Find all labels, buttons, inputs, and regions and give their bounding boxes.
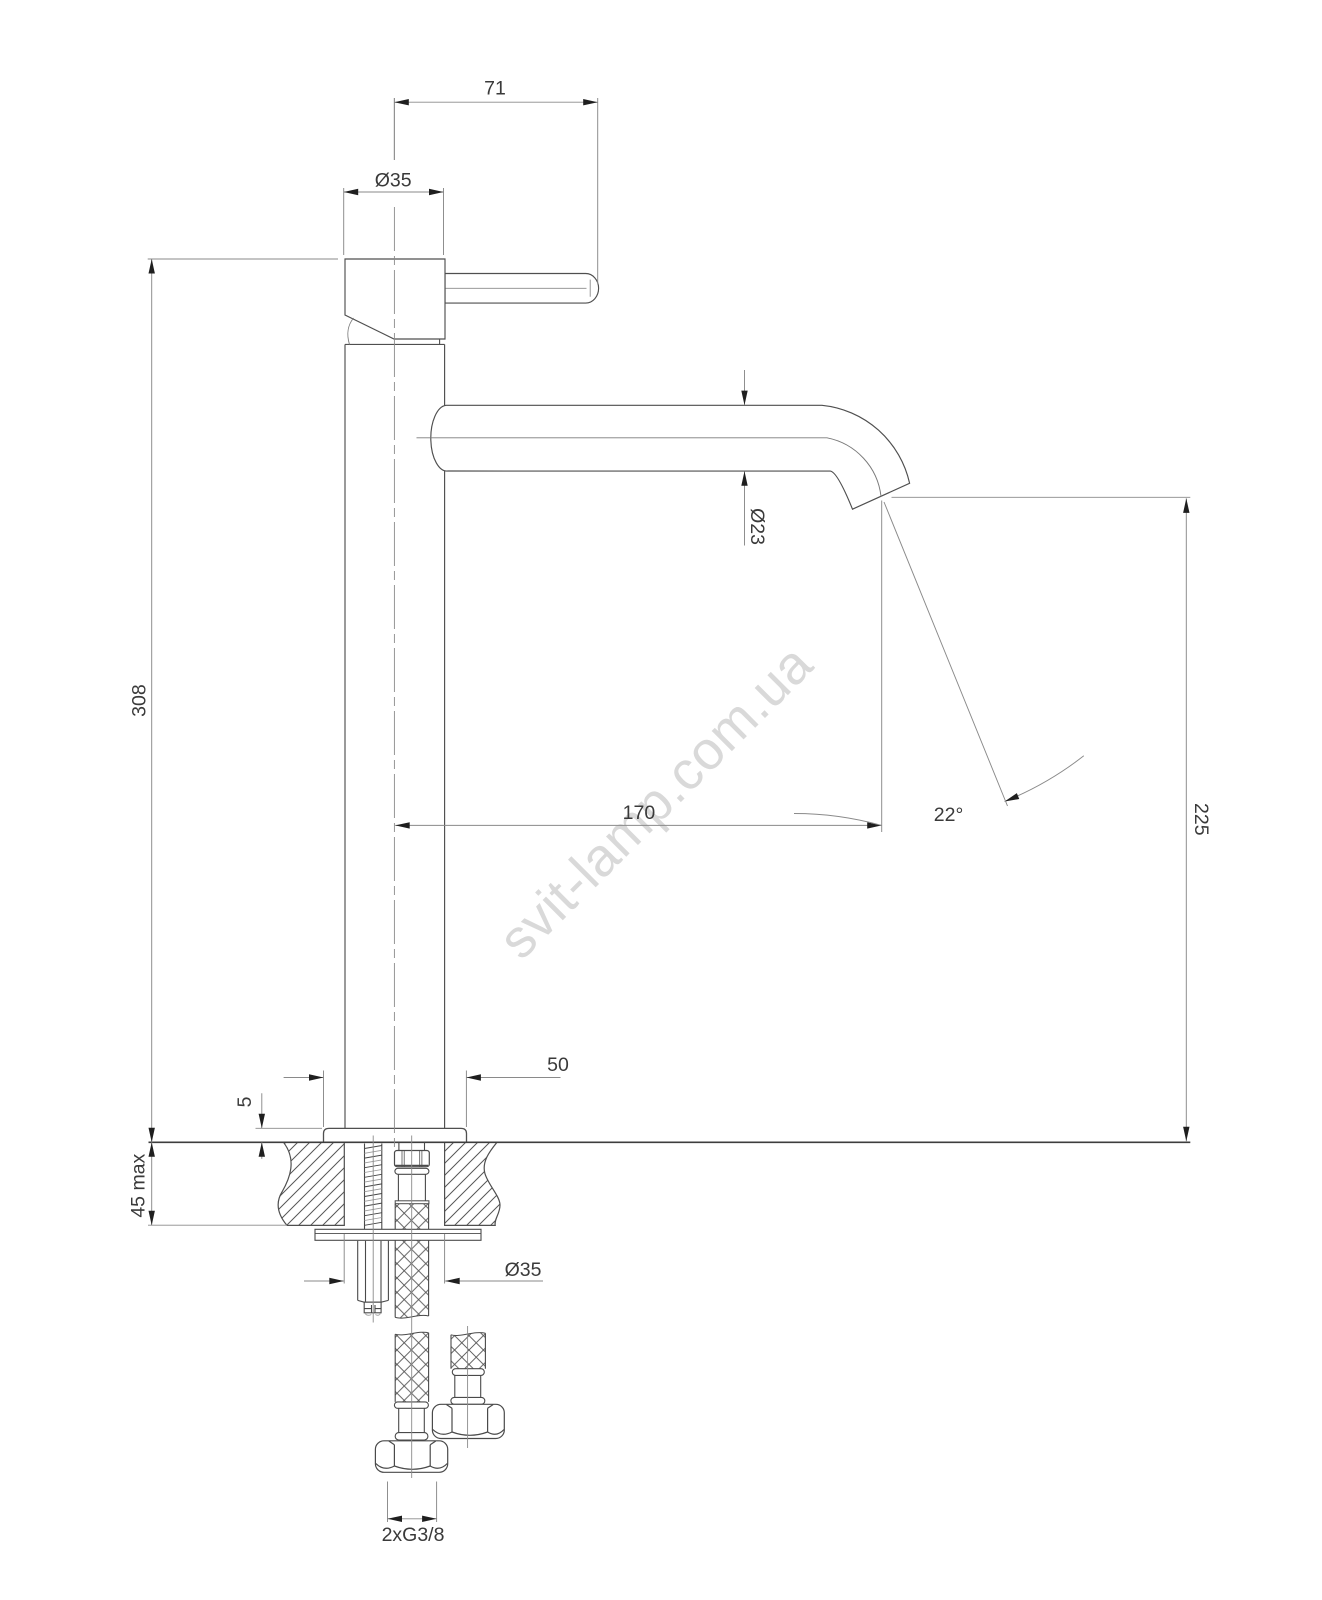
svg-text:Ø35: Ø35 [505,1259,542,1281]
svg-text:2xG3/8: 2xG3/8 [382,1524,445,1546]
svg-text:225: 225 [1190,803,1212,836]
svg-text:45 max: 45 max [128,1153,150,1217]
svg-text:22°: 22° [934,804,964,826]
svg-text:Ø35: Ø35 [375,169,412,191]
svg-text:71: 71 [484,78,506,100]
svg-text:50: 50 [547,1054,569,1076]
svg-text:170: 170 [623,802,656,824]
svg-text:5: 5 [234,1096,256,1107]
svg-text:Ø23: Ø23 [746,508,768,545]
svg-text:308: 308 [128,684,150,717]
